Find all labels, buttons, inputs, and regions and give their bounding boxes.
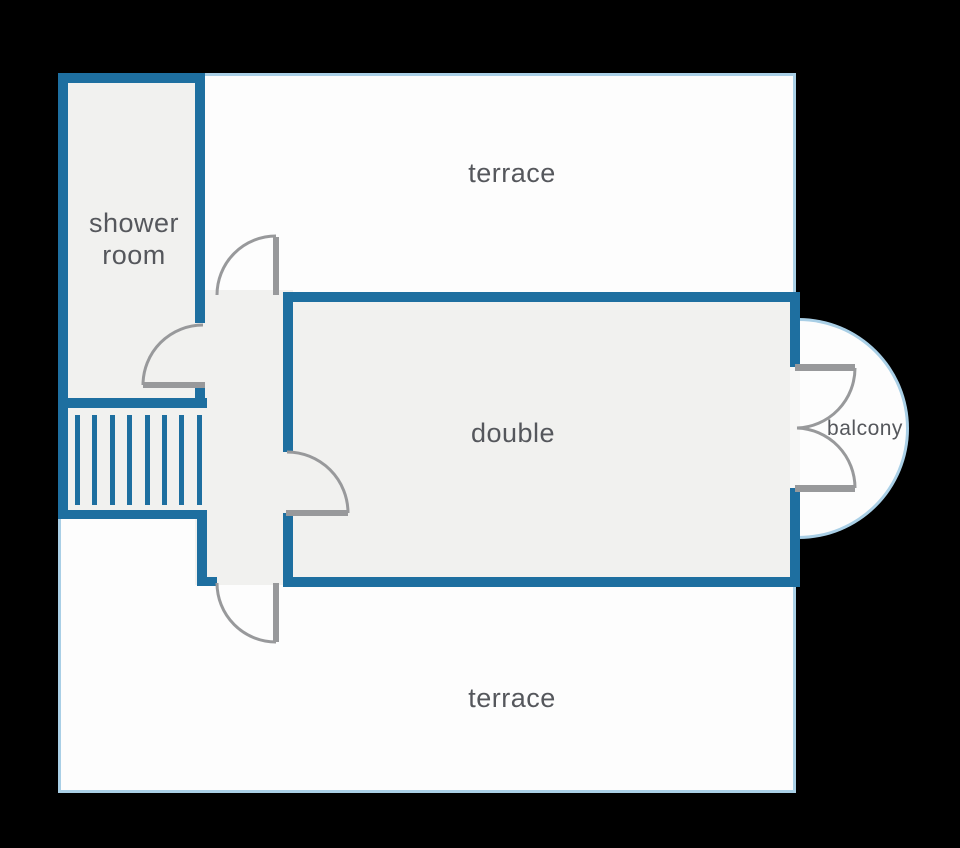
terrace-top-label: terrace	[412, 158, 612, 190]
door-arc-terrace-top	[217, 236, 276, 295]
balcony-label: balcony	[815, 417, 915, 442]
terrace-bottom-label: terrace	[412, 683, 612, 715]
shower-room-label: shower room	[64, 208, 204, 272]
double-room-label: double	[413, 418, 613, 450]
door-arc-double	[287, 452, 348, 513]
door-arc-shower	[143, 325, 203, 385]
floor-plan: shower room terrace double balcony terra…	[0, 0, 960, 848]
door-arc-terrace-bottom	[217, 583, 276, 642]
